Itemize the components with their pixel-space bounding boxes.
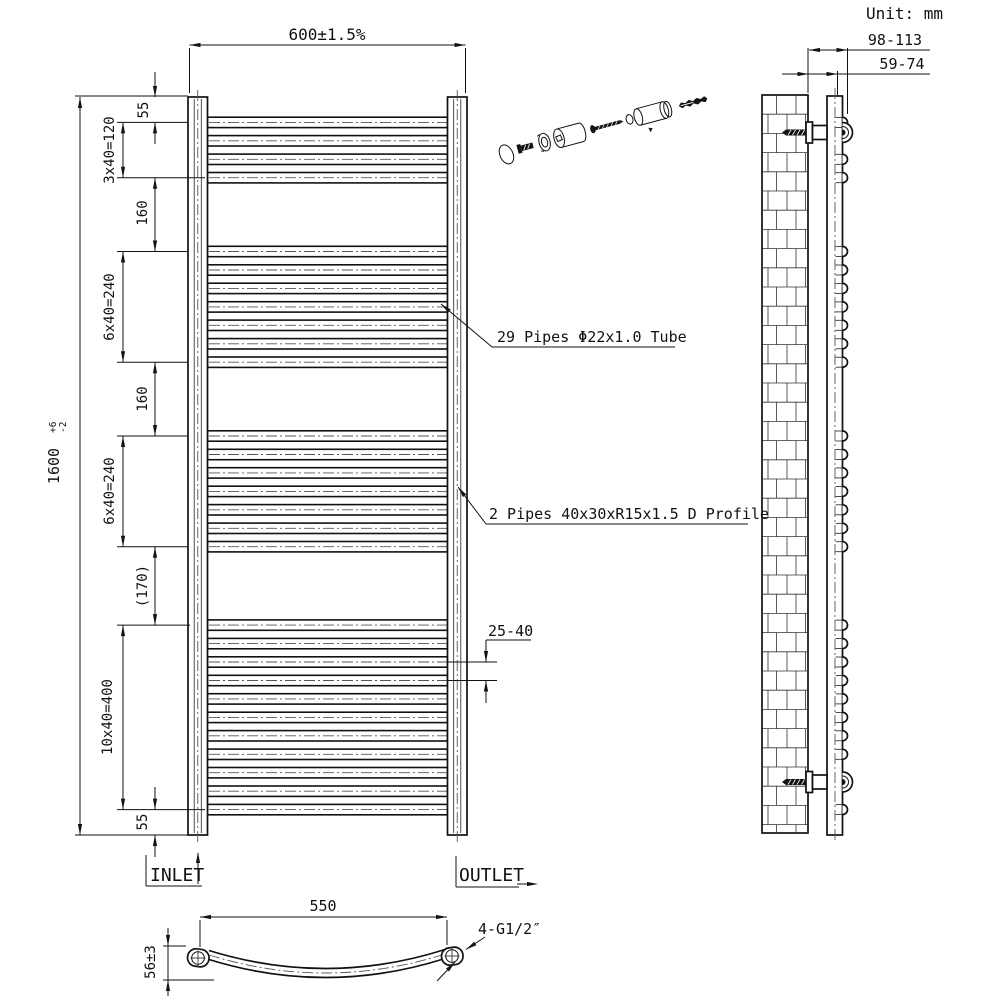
arrowhead — [436, 915, 447, 919]
arrowhead — [121, 167, 125, 178]
bottom-view — [186, 946, 464, 977]
arrowhead — [121, 799, 125, 810]
pipe-end-bump — [843, 712, 848, 722]
arrowhead — [798, 72, 809, 76]
arrowhead — [153, 547, 157, 558]
pipe-end-bump — [843, 173, 848, 183]
arrowhead — [527, 882, 538, 886]
chain-dim-6x40-a: 6x40=240 — [102, 273, 118, 340]
inlet-label: INLET — [150, 865, 204, 886]
bracket-barrel — [813, 126, 828, 140]
pipe-end-bump — [843, 320, 848, 330]
arrowhead — [153, 122, 157, 133]
arrowhead — [153, 799, 157, 810]
pipe-gap-dimension: 25-40 — [488, 622, 533, 640]
overall-height-dimension: 1600 +6 -2 — [45, 421, 69, 484]
technical-drawing-page: Unit: mm 600±1.5% 1600 +6 -2 55 3x40=120… — [0, 0, 1000, 1000]
arrowhead — [78, 97, 82, 108]
chain-dim-55-top: 55 — [136, 102, 152, 119]
curved-pipe-front-edge — [209, 950, 445, 969]
pipe-end-bump — [843, 731, 848, 741]
pipe-end-bump — [843, 749, 848, 759]
pipe-end-bump — [843, 247, 848, 257]
arrowhead — [200, 915, 211, 919]
bottom-width-dimension: 550 — [309, 897, 336, 915]
arrowhead — [121, 351, 125, 362]
arrowhead — [121, 252, 125, 263]
arrowhead — [153, 241, 157, 252]
pipe-end-bump — [843, 639, 848, 649]
side-dim-wall-to-back: 59-74 — [879, 55, 924, 73]
pipe-end-bump — [843, 468, 848, 478]
small-bolt-shaft — [521, 143, 534, 152]
chain-dim-55-bottom: 55 — [135, 814, 151, 831]
arrowhead — [121, 436, 125, 447]
width-dimension: 600±1.5% — [288, 25, 365, 44]
arrowhead — [809, 48, 820, 52]
chain-dim-3x40: 3x40=120 — [102, 116, 118, 183]
front-view-pipes — [189, 117, 466, 815]
arrowhead — [484, 651, 488, 662]
height-tol-minus: -2 — [58, 422, 69, 433]
bottom-depth-dimension: 56±3 — [143, 945, 159, 979]
pipe-end-bump — [843, 620, 848, 630]
pipe-end-bump — [843, 431, 848, 441]
arrowhead — [153, 614, 157, 625]
pipe-end-bump — [843, 339, 848, 349]
pipe-end-bump — [843, 523, 848, 533]
pipe-end-bump — [843, 450, 848, 460]
arrowhead — [121, 536, 125, 547]
arrowhead — [190, 43, 201, 47]
pipe-end-bump — [843, 486, 848, 496]
arrowhead — [455, 43, 466, 47]
bracket-barrel — [813, 775, 828, 789]
chain-dim-10x40: 10x40=400 — [100, 679, 116, 755]
pipe-end-bump — [843, 505, 848, 515]
pipe-end-bump — [843, 657, 848, 667]
arrowhead — [78, 824, 82, 835]
chain-dim-160-a: 160 — [135, 200, 151, 225]
arrowhead — [153, 86, 157, 97]
outlet-label: OUTLET — [459, 865, 524, 886]
pipe-end-bump — [843, 302, 848, 312]
small-pin — [648, 127, 653, 133]
washer-nut — [625, 114, 634, 125]
front-view-rails — [188, 90, 467, 842]
pipe-end-bump — [843, 265, 848, 275]
chain-dim-160-b: 160 — [135, 386, 151, 411]
arrowhead — [121, 122, 125, 133]
arrowhead — [153, 178, 157, 189]
pipe-end-bump — [843, 805, 848, 815]
pipe-end-bump — [843, 357, 848, 367]
mounting-kit-exploded — [496, 89, 712, 172]
arrowhead — [827, 72, 838, 76]
bracket-flange — [806, 122, 813, 143]
chain-dim-170: (170) — [135, 565, 151, 607]
thread-label: 4-G1/2″ — [478, 920, 541, 938]
pipe-end-bump — [843, 542, 848, 552]
pipe-end-bump — [843, 694, 848, 704]
curved-pipe-centerline — [209, 954, 445, 973]
mounting-kit — [496, 89, 712, 172]
cover-cap — [496, 143, 516, 167]
chain-dim-6x40-b: 6x40=240 — [102, 457, 118, 524]
side-view — [762, 88, 853, 843]
side-dim-wall-to-front: 98-113 — [868, 31, 922, 49]
pipe-end-bump — [843, 283, 848, 293]
arrowhead — [837, 48, 848, 52]
arrowhead — [484, 681, 488, 692]
pipes-leader-label: 29 Pipes Φ22x1.0 Tube — [497, 328, 687, 346]
arrowhead — [153, 362, 157, 373]
arrowhead — [166, 935, 170, 946]
towel-radiator-drawing: Unit: mm 600±1.5% 1600 +6 -2 55 3x40=120… — [0, 0, 1000, 1000]
wall — [762, 95, 808, 833]
pipe-end-bump — [843, 154, 848, 164]
unit-label: Unit: mm — [866, 4, 943, 23]
height-value: 1600 — [45, 448, 63, 484]
profile-leader-label: 2 Pipes 40x30xR15x1.5 D Profile — [489, 505, 769, 523]
sleeve-left-face — [632, 108, 644, 126]
arrowhead — [166, 980, 170, 991]
arrowhead — [153, 835, 157, 846]
arrowhead — [153, 425, 157, 436]
arrowhead — [466, 942, 476, 950]
arrowhead — [121, 625, 125, 636]
pipe-end-bump — [843, 676, 848, 686]
bracket-flange — [806, 772, 813, 793]
arrowhead — [196, 852, 200, 863]
